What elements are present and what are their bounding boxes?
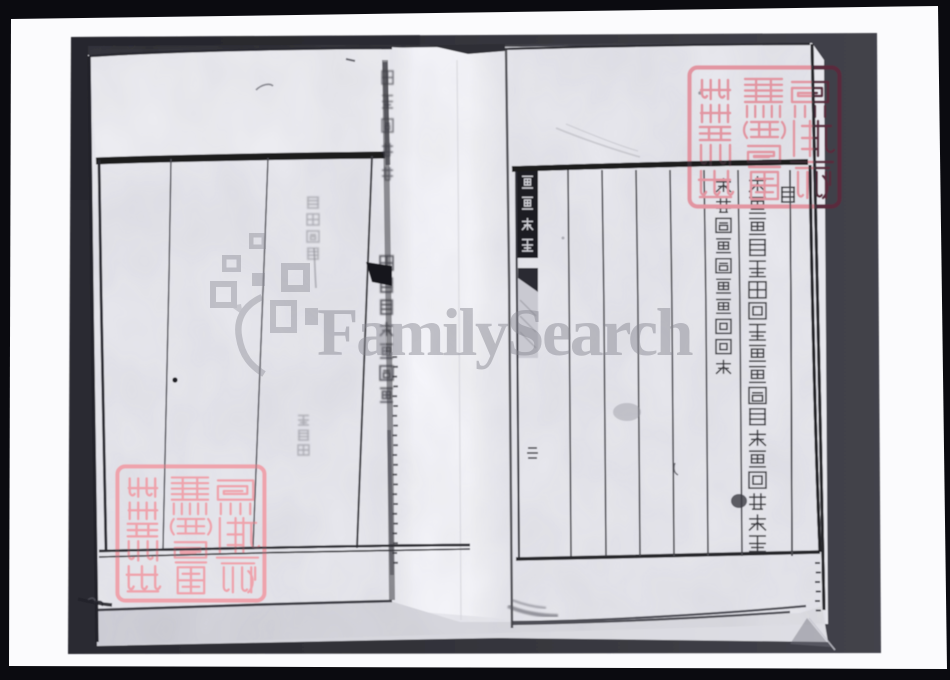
svg-text:FamilySearch: FamilySearch: [317, 294, 693, 370]
